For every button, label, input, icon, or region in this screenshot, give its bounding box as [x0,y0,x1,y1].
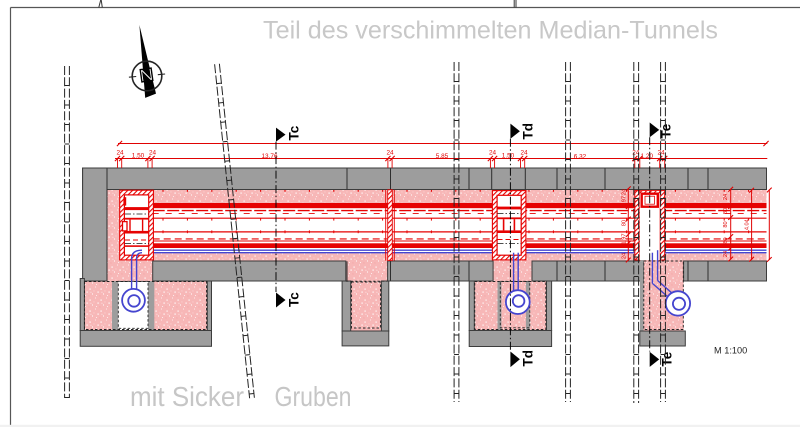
svg-text:80: 80 [622,220,628,226]
svg-text:24: 24 [622,189,628,195]
svg-text:24: 24 [520,150,528,157]
svg-text:13.76: 13.76 [262,153,278,160]
svg-text:6.32: 6.32 [574,153,587,160]
svg-text:Td: Td [521,123,536,140]
svg-text:1.20: 1.20 [641,153,654,160]
svg-text:24: 24 [149,150,157,157]
svg-text:1.97: 1.97 [622,196,628,207]
svg-text:Tc: Tc [287,125,302,140]
svg-text:mit Sicker: mit Sicker [130,381,244,412]
svg-text:80: 80 [723,221,729,227]
svg-text:24: 24 [622,253,628,259]
svg-text:1.97: 1.97 [622,234,628,245]
svg-text:5.85: 5.85 [436,153,449,160]
svg-text:24: 24 [657,149,665,156]
svg-text:24: 24 [386,150,394,157]
svg-text:Te: Te [660,351,675,366]
svg-text:M 1:100: M 1:100 [714,345,747,355]
svg-text:1.50: 1.50 [502,152,515,159]
svg-text:24: 24 [723,251,729,257]
svg-text:80: 80 [723,237,729,243]
svg-text:24: 24 [489,150,497,157]
svg-text:1.50: 1.50 [132,152,145,159]
svg-text:4.04: 4.04 [745,219,751,230]
svg-text:24: 24 [116,150,124,157]
svg-text:Gruben: Gruben [275,381,352,412]
svg-text:24: 24 [723,194,729,200]
svg-text:Tc: Tc [287,292,302,307]
svg-text:Teil des verschimmelten Median: Teil des verschimmelten Median-Tunnels [263,16,718,44]
svg-text:80: 80 [723,208,729,214]
svg-text:Td: Td [521,350,536,367]
